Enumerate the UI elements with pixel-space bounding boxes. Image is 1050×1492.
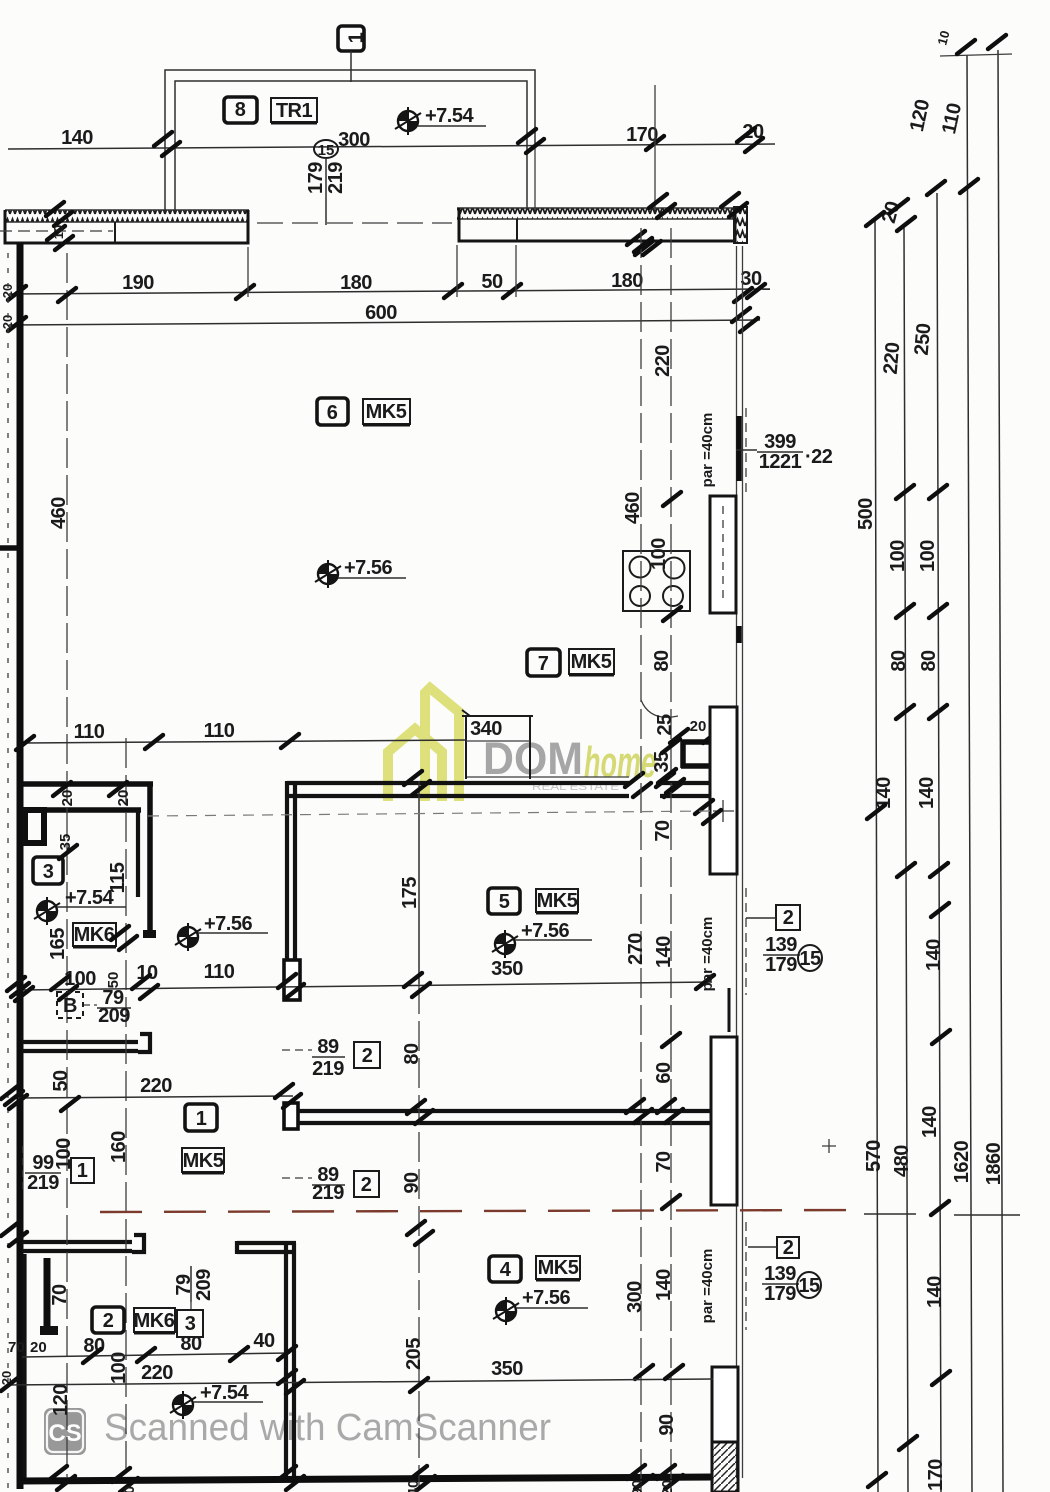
svg-text:par =40cm: par =40cm	[699, 917, 716, 992]
svg-text:170: 170	[925, 1459, 947, 1491]
svg-text:220: 220	[652, 345, 674, 377]
svg-text:89: 89	[317, 1036, 339, 1058]
svg-text:110: 110	[204, 720, 235, 742]
svg-text:179: 179	[305, 162, 327, 194]
svg-text:70: 70	[652, 820, 674, 842]
svg-text:MK5: MK5	[538, 1257, 579, 1279]
svg-text:1860: 1860	[983, 1142, 1005, 1185]
svg-text:180: 180	[340, 272, 372, 294]
svg-text:40: 40	[253, 1330, 275, 1352]
svg-text:15: 15	[799, 948, 821, 970]
svg-text:139: 139	[765, 934, 797, 956]
svg-text:399: 399	[764, 431, 796, 453]
svg-text:480: 480	[891, 1145, 913, 1177]
svg-text:par =40cm: par =40cm	[699, 413, 716, 488]
svg-text:500: 500	[855, 498, 877, 530]
svg-text:6: 6	[327, 402, 338, 424]
svg-text:1221: 1221	[759, 451, 802, 473]
svg-text:140: 140	[923, 939, 945, 971]
svg-text:600: 600	[365, 302, 397, 324]
svg-text:MK5: MK5	[537, 890, 578, 912]
svg-text:160: 160	[108, 1131, 130, 1163]
svg-text:3: 3	[185, 1313, 196, 1335]
svg-text:209: 209	[193, 1269, 215, 1301]
svg-text:+7.56: +7.56	[204, 913, 252, 935]
svg-text:+7.54: +7.54	[65, 887, 114, 909]
svg-text:140: 140	[924, 1276, 946, 1308]
svg-text:100: 100	[887, 540, 909, 572]
svg-text:140: 140	[916, 777, 938, 809]
svg-text:100: 100	[108, 1352, 130, 1384]
svg-text:190: 190	[122, 272, 154, 294]
svg-text:25: 25	[654, 714, 676, 736]
svg-text:205: 205	[403, 1338, 425, 1370]
svg-text:219: 219	[27, 1172, 59, 1194]
svg-text:90: 90	[401, 1172, 423, 1194]
svg-text:1: 1	[77, 1160, 88, 1182]
svg-text:99: 99	[32, 1152, 54, 1174]
svg-text:50: 50	[105, 972, 122, 989]
svg-text:140: 140	[653, 1269, 675, 1301]
svg-text:CS: CS	[48, 1420, 81, 1447]
svg-text:1620: 1620	[951, 1140, 973, 1183]
svg-text:20: 20	[115, 790, 132, 807]
svg-text:140: 140	[61, 127, 93, 149]
svg-text:2: 2	[362, 1045, 373, 1067]
svg-text:2: 2	[361, 1174, 372, 1196]
svg-text:15: 15	[798, 1275, 820, 1297]
svg-text:70: 70	[8, 1339, 25, 1356]
svg-text:100: 100	[64, 968, 96, 990]
svg-text:5: 5	[499, 891, 510, 913]
svg-text:4: 4	[500, 1259, 512, 1281]
svg-text:300: 300	[624, 1281, 646, 1313]
svg-text:80: 80	[918, 650, 940, 672]
svg-text:10: 10	[51, 225, 66, 239]
svg-text:2: 2	[783, 1237, 794, 1259]
svg-text:+7.54: +7.54	[425, 105, 474, 127]
svg-text:460: 460	[48, 497, 70, 529]
svg-text:70: 70	[653, 1151, 675, 1173]
svg-text:300: 300	[338, 129, 370, 151]
svg-text:110: 110	[204, 961, 235, 983]
svg-text:50: 50	[481, 271, 503, 293]
svg-text:120: 120	[50, 1384, 72, 1416]
svg-text:15: 15	[318, 142, 335, 159]
svg-text:+7.56: +7.56	[344, 557, 392, 579]
svg-text:100: 100	[917, 540, 939, 572]
svg-text:250: 250	[911, 322, 936, 356]
svg-text:MK5: MK5	[571, 651, 612, 673]
svg-text:1: 1	[196, 1108, 207, 1130]
svg-text:+7.56: +7.56	[521, 920, 569, 942]
svg-text:8: 8	[235, 99, 246, 121]
svg-text:20: 20	[59, 790, 76, 807]
svg-text:350: 350	[491, 958, 523, 980]
svg-text:50: 50	[50, 1070, 72, 1092]
svg-text:20: 20	[659, 1480, 676, 1492]
svg-text:220: 220	[140, 1075, 172, 1097]
svg-text:+7.54: +7.54	[200, 1382, 249, 1404]
svg-text:80: 80	[888, 650, 910, 672]
svg-text:90: 90	[656, 1414, 678, 1436]
svg-text:270: 270	[625, 933, 647, 965]
svg-text:+7.56: +7.56	[522, 1287, 570, 1309]
svg-text:70: 70	[49, 1284, 71, 1306]
svg-text:175: 175	[399, 877, 421, 909]
svg-text:179: 179	[764, 1283, 796, 1305]
svg-text:20: 20	[30, 1339, 47, 1356]
svg-text:MK6: MK6	[134, 1310, 175, 1332]
svg-text:340: 340	[470, 718, 502, 740]
svg-text:7: 7	[538, 653, 549, 675]
svg-text:140: 140	[919, 1106, 941, 1138]
svg-text:60: 60	[653, 1062, 675, 1084]
svg-text:par =40cm: par =40cm	[699, 1249, 716, 1324]
svg-text:MK6: MK6	[74, 924, 115, 946]
svg-text:home: home	[584, 738, 656, 787]
svg-text:·22: ·22	[805, 446, 833, 468]
svg-text:219: 219	[312, 1058, 344, 1080]
svg-text:220: 220	[141, 1362, 173, 1384]
svg-text:2: 2	[103, 1310, 114, 1332]
svg-text:165: 165	[47, 928, 69, 960]
svg-text:90: 90	[629, 1480, 646, 1492]
svg-text:219: 219	[312, 1182, 344, 1204]
svg-text:100: 100	[648, 538, 670, 570]
svg-text:MK5: MK5	[366, 401, 407, 423]
svg-text:TR1: TR1	[276, 100, 313, 122]
svg-text:110: 110	[74, 721, 105, 743]
svg-text:350: 350	[491, 1358, 523, 1380]
svg-text:3: 3	[43, 861, 54, 883]
svg-text:0: 0	[121, 1486, 138, 1492]
svg-text:139: 139	[764, 1263, 796, 1285]
svg-text:2: 2	[783, 907, 794, 929]
svg-text:1: 1	[345, 32, 367, 43]
svg-text:80: 80	[651, 650, 673, 672]
svg-text:B: B	[63, 995, 77, 1017]
svg-text:460: 460	[622, 492, 644, 524]
svg-text:220: 220	[880, 341, 905, 375]
svg-text:MK5: MK5	[183, 1150, 224, 1172]
svg-text:219: 219	[325, 162, 347, 194]
svg-text:570: 570	[863, 1140, 885, 1172]
svg-text:209: 209	[98, 1005, 130, 1027]
svg-text:80: 80	[401, 1043, 423, 1065]
svg-text:179: 179	[765, 954, 797, 976]
svg-text:140: 140	[653, 936, 675, 968]
svg-text:40: 40	[405, 1480, 422, 1492]
svg-text:180: 180	[611, 270, 643, 292]
svg-text:20: 20	[690, 718, 707, 735]
